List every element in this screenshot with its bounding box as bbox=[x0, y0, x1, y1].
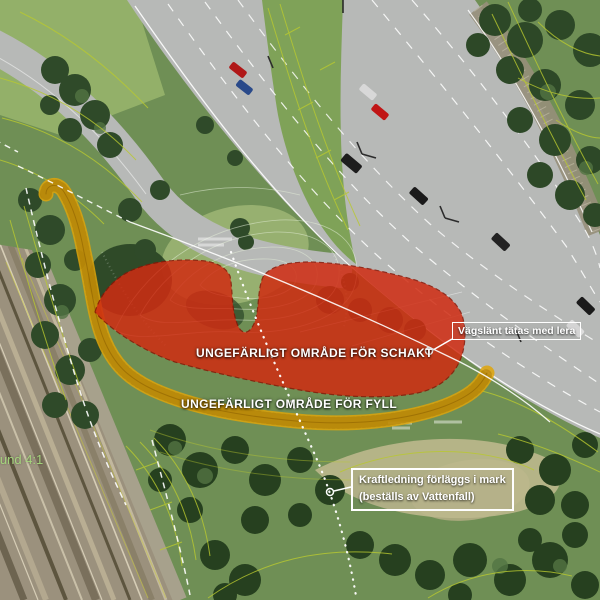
kraftledning-callout: Kraftledning förläggs i mark (beställs a… bbox=[351, 468, 514, 511]
schakt-area-label: UNGEFÄRLIGT OMRÅDE FÖR SCHAKT bbox=[196, 346, 433, 360]
aerial-site-plan: UNGEFÄRLIGT OMRÅDE FÖR SCHAKT UNGEFÄRLIG… bbox=[0, 0, 600, 600]
fyll-area-label: UNGEFÄRLIGT OMRÅDE FÖR FYLL bbox=[181, 397, 397, 411]
kraftledning-callout-line2: (beställs av Vattenfall) bbox=[359, 489, 506, 506]
vagslant-callout: Vägslänt tätas med lera bbox=[452, 322, 581, 340]
kraftledning-callout-line1: Kraftledning förläggs i mark bbox=[359, 472, 506, 489]
vagslant-callout-text: Vägslänt tätas med lera bbox=[458, 325, 575, 337]
parcel-label: lund 4:1 bbox=[0, 452, 43, 467]
